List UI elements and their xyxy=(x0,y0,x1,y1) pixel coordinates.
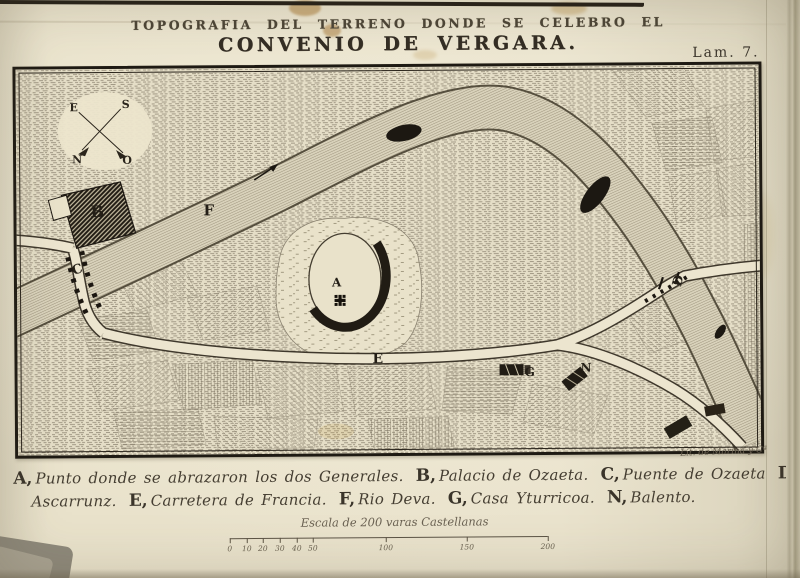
scale-tick-label: 100 xyxy=(379,543,393,552)
scale-tick-label: 30 xyxy=(275,544,285,553)
scale-tick-label: 50 xyxy=(308,544,318,553)
label-F: F xyxy=(203,201,214,219)
scale-tick xyxy=(386,537,387,542)
scale-tick xyxy=(297,538,298,543)
plate-main-title: CONVENIO DE VERGARA. xyxy=(0,30,798,58)
label-B: B xyxy=(90,202,104,221)
legend-text: Carretera de Francia. xyxy=(151,491,327,510)
scale-tick-label: 40 xyxy=(292,544,302,553)
legend-key: E, xyxy=(129,491,148,511)
meeting-point-marker xyxy=(335,295,346,306)
compass-north-label: N xyxy=(72,153,82,166)
page-fold-line xyxy=(766,0,767,578)
compass-east-label: E xyxy=(69,101,77,114)
label-E: E xyxy=(372,351,383,367)
compass-rose: E S N O xyxy=(58,92,153,171)
scale-tick xyxy=(247,538,248,543)
page-right-edge xyxy=(786,0,800,578)
map-scale: Escala de 200 varas Castellanas 0 10 20 … xyxy=(230,514,560,549)
scale-tick xyxy=(467,537,468,542)
legend-text: Punto donde se abrazaron los dos General… xyxy=(35,467,403,488)
legend-key: A, xyxy=(13,469,32,489)
scale-tick-label: 150 xyxy=(460,542,474,551)
scale-bar-line xyxy=(230,536,548,539)
scale-tick-label: 10 xyxy=(242,544,252,553)
meeting-ground xyxy=(275,217,422,360)
legend-line-1: A,Punto donde se abrazaron los dos Gener… xyxy=(13,463,789,488)
label-G: G xyxy=(525,365,535,379)
scale-tick xyxy=(548,536,549,541)
page-bottom-edge xyxy=(0,569,800,578)
scanned-book-page: TOPOGRAFIA DEL TERRENO DONDE SE CELEBRO … xyxy=(0,0,800,578)
legend-key: B, xyxy=(416,466,436,486)
legend-key: N, xyxy=(607,487,628,507)
plate-content: TOPOGRAFIA DEL TERRENO DONDE SE CELEBRO … xyxy=(0,0,800,578)
scale-tick xyxy=(230,538,231,543)
label-N: N xyxy=(581,361,592,375)
map-plate-frame: E S N O xyxy=(12,61,764,458)
legend-text: Ascarrunz. xyxy=(31,492,116,511)
scale-tick xyxy=(280,538,281,543)
legend-text: Balento. xyxy=(630,488,695,506)
plate-number: Lam. 7. xyxy=(692,44,782,61)
legend-key: F, xyxy=(339,489,355,509)
legend-text: Puente de Ozaeta xyxy=(623,464,766,483)
scale-tick-label: 20 xyxy=(258,544,268,553)
scale-bar: 0 10 20 30 40 50 100 150 200 xyxy=(230,533,560,549)
compass-west-label: O xyxy=(122,154,132,167)
label-A: A xyxy=(331,275,342,289)
legend-text: Palacio de Ozaeta. xyxy=(439,466,589,485)
scale-caption: Escala de 200 varas Castellanas xyxy=(230,514,560,530)
legend-text: Rio Deva. xyxy=(358,490,436,509)
legend-text: Casa Yturricoa. xyxy=(471,489,595,508)
scale-tick xyxy=(313,538,314,543)
scale-tick-label: 200 xyxy=(541,542,555,551)
scale-tick xyxy=(263,538,264,543)
legend-line-2: Ascarrunz. E,Carretera de Francia. F,Rio… xyxy=(13,486,789,511)
scale-tick-label: 0 xyxy=(227,544,232,553)
legend-key: G, xyxy=(448,489,468,509)
compass-south-label: S xyxy=(122,98,130,111)
legend-key: C, xyxy=(601,464,620,484)
map-legend: A,Punto donde se abrazaron los dos Gener… xyxy=(13,463,789,511)
map-canvas: E S N O xyxy=(15,64,761,455)
